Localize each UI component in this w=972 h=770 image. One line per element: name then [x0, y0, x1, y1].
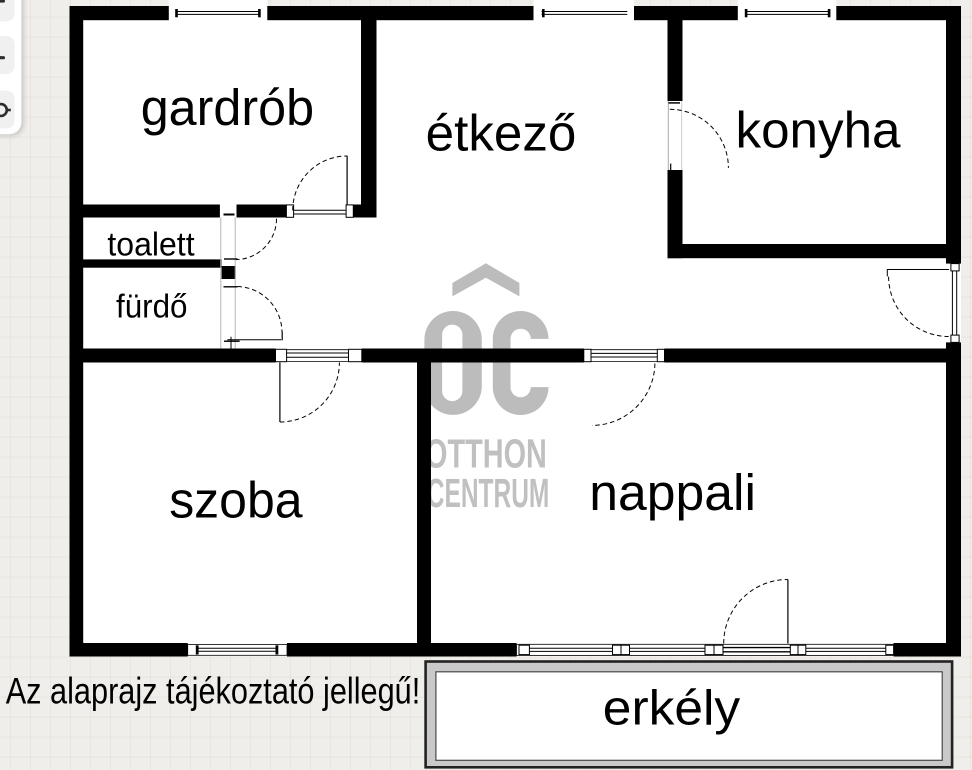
svg-text:Az alaprajz tájékoztató jelleg: Az alaprajz tájékoztató jellegű! [6, 670, 421, 711]
svg-text:gardrób: gardrób [141, 79, 314, 136]
svg-text:étkező: étkező [426, 104, 577, 161]
svg-text:konyha: konyha [736, 102, 902, 159]
svg-text:fürdő: fürdő [116, 288, 188, 325]
svg-text:szoba: szoba [169, 471, 303, 528]
svg-text:toalett: toalett [107, 226, 194, 263]
svg-text:nappali: nappali [589, 464, 756, 521]
svg-text:CENTRUM: CENTRUM [427, 470, 550, 516]
svg-text:erkély: erkély [603, 681, 741, 735]
